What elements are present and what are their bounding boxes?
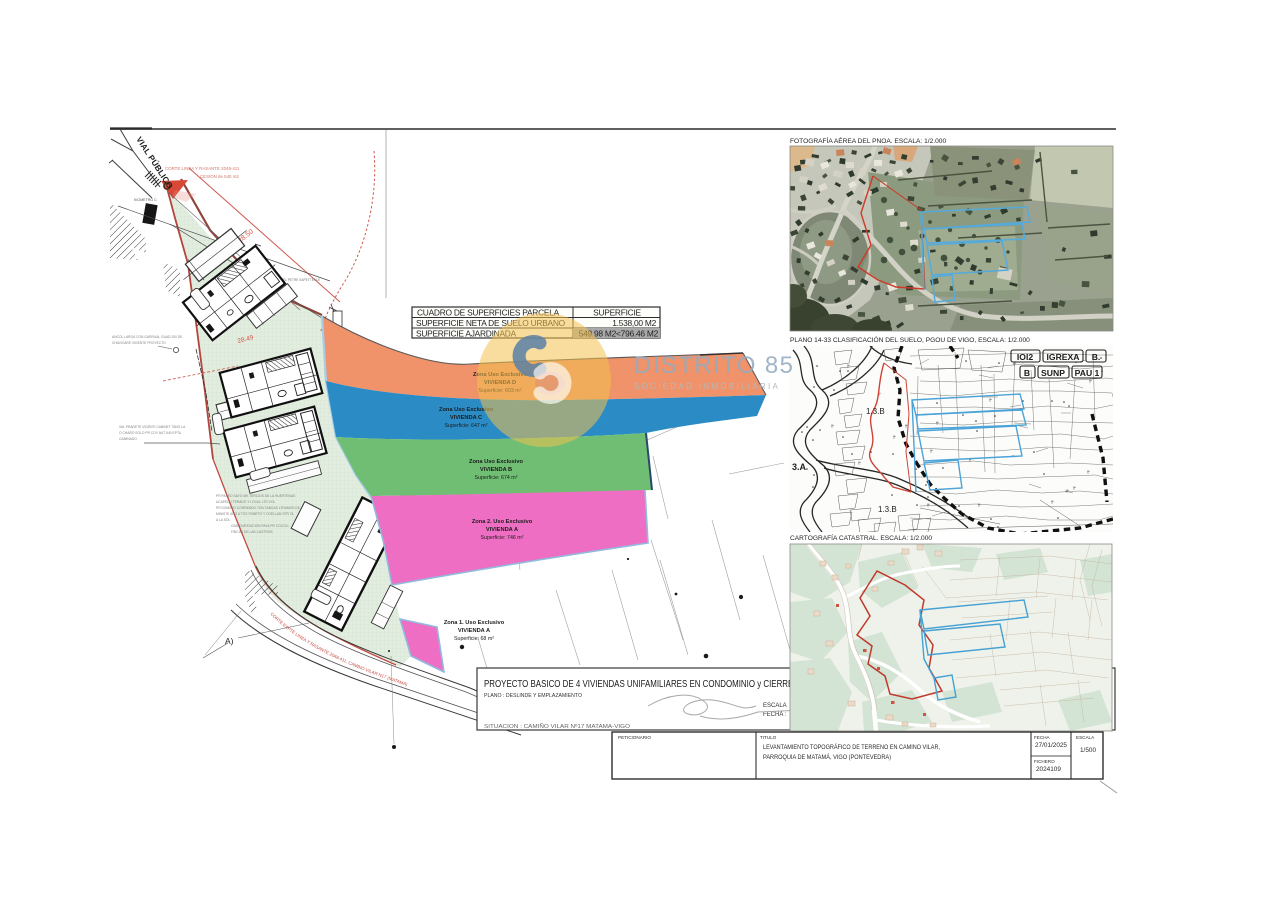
svg-text:PETICIONARIO: PETICIONARIO	[618, 735, 651, 740]
svg-text:Superficie: 674 m²: Superficie: 674 m²	[475, 475, 518, 481]
svg-text:A): A)	[225, 636, 234, 646]
svg-text:Superficie: 746 m²: Superficie: 746 m²	[481, 535, 524, 541]
svg-text:LEVANTAMIENTO TOPOGRÁFICO DE T: LEVANTAMIENTO TOPOGRÁFICO DE TERRENO EN …	[763, 742, 940, 751]
svg-text:FOTOGRAFÍA AÉREA DEL PNOA. ESC: FOTOGRAFÍA AÉREA DEL PNOA. ESCALA: 1/2.0…	[790, 136, 946, 145]
svg-text:VIVIENDA A: VIVIENDA A	[458, 628, 490, 634]
svg-text:CESION de 540 m2: CESION de 540 m2	[200, 174, 239, 179]
svg-text:VIVIENDA C: VIVIENDA C	[450, 415, 482, 421]
svg-text:TITULO: TITULO	[760, 735, 777, 740]
svg-text:Superficie: 647 m²: Superficie: 647 m²	[445, 423, 488, 429]
svg-text:O CHARO SOLO PR COY AUT 640 EP: O CHARO SOLO PR COY AUT 640 EPTA	[119, 431, 182, 435]
svg-text:CAMINADO: CAMINADO	[119, 437, 137, 441]
svg-text:3.A: 3.A	[792, 462, 807, 472]
svg-text:27/01/2025: 27/01/2025	[1035, 742, 1067, 749]
svg-text:VAL PRADETE VIGENTI CABINET TA: VAL PRADETE VIGENTI CABINET TANO LA	[119, 425, 186, 429]
svg-text:PLANO 14-33 CLASIFICACIÓN DEL: PLANO 14-33 CLASIFICACIÓN DEL SUELO, PGO…	[790, 335, 1030, 344]
svg-text:KIOMETRO C: KIOMETRO C	[134, 198, 157, 202]
svg-text:CORTE LINEA Y RASANTE 2048-411: CORTE LINEA Y RASANTE 2048-411	[165, 166, 240, 171]
svg-text:VIVIENDA B: VIVIENDA B	[480, 467, 512, 473]
svg-text:MINISTE AND A TOS YEMETO Y COE: MINISTE AND A TOS YEMETO Y COELLAN STR O…	[216, 512, 294, 516]
svg-text:FECHA :: FECHA :	[763, 712, 787, 718]
svg-text:VEL PETRE SAPETTENLE: VEL PETRE SAPETTENLE	[281, 278, 320, 282]
svg-text:PARROQUIA DE MATAMÁ, VIGO (PON: PARROQUIA DE MATAMÁ, VIGO (PONTEVEDRA)	[763, 752, 891, 761]
svg-text:1.3.B: 1.3.B	[878, 505, 897, 514]
svg-text:SITUACION : CAMIÑO VILAR N: SITUACION : CAMIÑO VILAR Nº17 MATAMA-VIG…	[484, 723, 631, 730]
svg-text:A LA SOL: A LA SOL	[216, 518, 230, 522]
svg-text:SOCIEDAD INMOBILIARIA: SOCIEDAD INMOBILIARIA	[634, 382, 780, 391]
svg-text:Zona 1. Uso Exclusivo: Zona 1. Uso Exclusivo	[444, 620, 505, 626]
svg-text:DISTRITO 85: DISTRITO 85	[634, 352, 794, 379]
svg-text:2024109: 2024109	[1036, 766, 1061, 773]
svg-text:1.3.B: 1.3.B	[866, 407, 885, 416]
svg-text:ESCALA: ESCALA	[763, 703, 787, 709]
svg-text:VIVIENDA A: VIVIENDA A	[486, 527, 518, 533]
svg-text:FINCAS DE LAS CASTROS: FINCAS DE LAS CASTROS	[231, 530, 273, 534]
svg-text:CARTOGRAFÍA CATASTRAL. ESCALA:: CARTOGRAFÍA CATASTRAL. ESCALA: 1/2.000	[790, 533, 932, 542]
svg-text:1.538,00 M2: 1.538,00 M2	[612, 318, 656, 328]
svg-text:Superficie: 68 m²: Superficie: 68 m²	[454, 636, 494, 642]
svg-text:IGREXA: IGREXA	[1047, 352, 1080, 362]
svg-text:1/500: 1/500	[1080, 747, 1096, 754]
svg-text:PLANO : DESLINDE Y EMPLAZAMIEN: PLANO : DESLINDE Y EMPLAZAMIENTO	[484, 693, 582, 699]
svg-text:ANCOL LARGA CON GARRUAL GUAD 2: ANCOL LARGA CON GARRUAL GUAD 200 DE	[112, 335, 183, 339]
svg-text:CHAVICARE VIGENTE PROYECTO: CHAVICARE VIGENTE PROYECTO	[112, 341, 166, 345]
svg-text:CIMADURATACION PAYA PR COCOLL: CIMADURATACION PAYA PR COCOLL	[231, 524, 289, 528]
svg-text:Zona Uso Exclusivo: Zona Uso Exclusivo	[469, 459, 524, 465]
svg-text:ESCALA: ESCALA	[1076, 735, 1095, 740]
svg-text:ACAPELLI TERADO Y LOCAL LTD VO: ACAPELLI TERADO Y LOCAL LTD VOL	[216, 500, 276, 504]
svg-text:FICHERO: FICHERO	[1034, 759, 1055, 764]
svg-text:PR PASEO SAYO MK TERCIOS DE LA: PR PASEO SAYO MK TERCIOS DE LA HUERTENAS	[216, 494, 296, 498]
svg-text:PR DOMINIO CORRENDO TON TABOAS: PR DOMINIO CORRENDO TON TABOAS LTRAMOS D…	[216, 506, 301, 510]
svg-text:PAU 1: PAU 1	[1075, 368, 1100, 378]
svg-text:Zona 2. Uso Exclusivo: Zona 2. Uso Exclusivo	[472, 519, 533, 525]
svg-text:SUNP: SUNP	[1041, 368, 1065, 378]
svg-text:B: B	[1024, 368, 1030, 378]
svg-text:B.: B.	[1092, 352, 1101, 362]
svg-text:IOI2: IOI2	[1017, 352, 1033, 362]
svg-text:FECHA: FECHA	[1034, 735, 1051, 740]
svg-text:SUPERFICIE: SUPERFICIE	[593, 308, 641, 318]
